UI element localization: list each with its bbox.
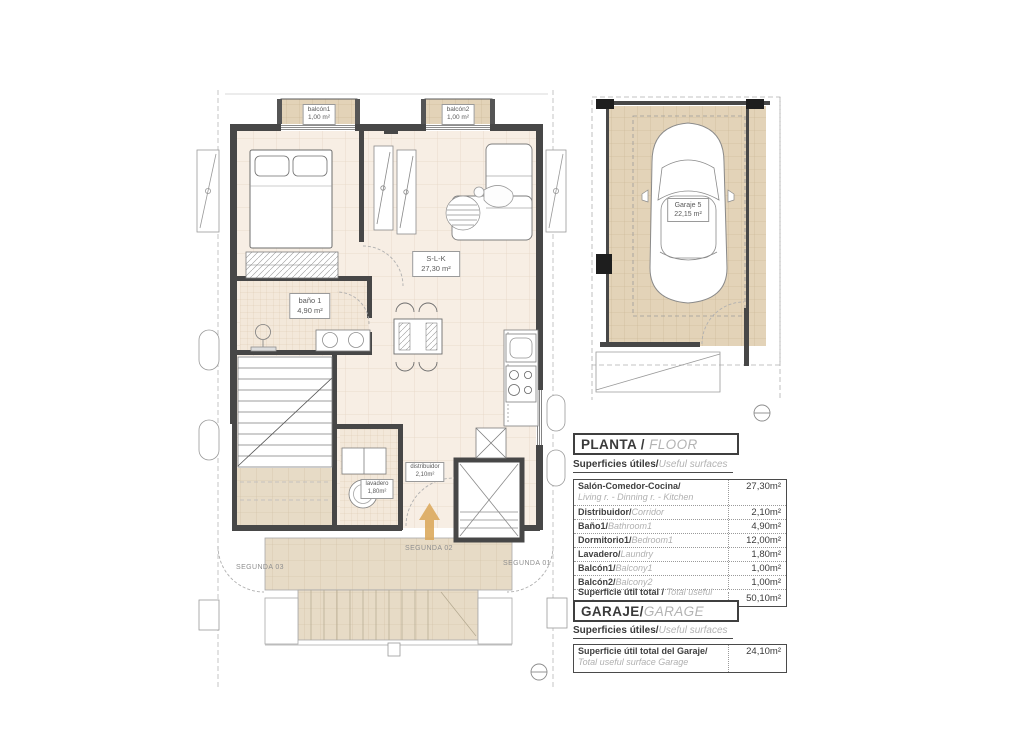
room-label-hall: distribuidor 2,10m² <box>405 462 444 482</box>
floorplan-page: balcón1 1,00 m² balcón2 1,00 m² S-L-K 27… <box>0 0 1020 745</box>
terrace <box>265 538 512 656</box>
room-label-balcony2: balcón2 1,00 m² <box>442 104 475 125</box>
annotation-segunda03: SEGUNDA 03 <box>236 564 284 571</box>
table-row: Salón-Comedor-Cocina/ Living r. - Dinnin… <box>574 480 786 505</box>
table-row: Balcón1/Balcony1 1,00m² <box>574 561 786 575</box>
annotation-segunda02: SEGUNDA 02 <box>405 545 453 552</box>
floor-section-subtitle: Superficies útiles/Useful surfaces <box>573 459 733 473</box>
garage-ramp <box>596 352 720 392</box>
wardrobe <box>246 252 338 278</box>
room-label-balcony1: balcón1 1,00 m² <box>303 104 336 125</box>
room-label-living: S-L-K 27,30 m² <box>412 251 460 277</box>
table-row: Distribuidor/Corridor 2,10m² <box>574 505 786 519</box>
room-label-garage: Garaje 5 22,15 m² <box>667 198 709 222</box>
table-row: Lavadero/Laundry 1,80m² <box>574 547 786 561</box>
room-label-laundry: lavadero 1,80m² <box>360 479 393 499</box>
garage-surface-table: Superficie útil total del Garaje/ Total … <box>573 644 787 673</box>
table-row: Baño1/Bathroom1 4,90m² <box>574 519 786 533</box>
table-row: Dormitorio1/Bedroom1 12,00m² <box>574 533 786 547</box>
table-row-total: Superficie útil total del Garaje/ Total … <box>574 645 786 672</box>
floor-surface-table: Salón-Comedor-Cocina/ Living r. - Dinnin… <box>573 479 787 607</box>
bed <box>250 150 332 248</box>
round-rug <box>446 196 480 230</box>
room-label-bath: baño 1 4,90 m² <box>289 293 330 319</box>
floor-section-title: PLANTA / FLOOR <box>573 433 739 455</box>
garage-section-title: GARAJE/GARAGE <box>573 600 739 622</box>
plan-drawing <box>0 0 1020 745</box>
elevator-shaft <box>456 460 522 540</box>
annotation-segunda01: SEGUNDA 01 <box>503 560 551 567</box>
garage-section-subtitle: Superficies útiles/Useful surfaces <box>573 625 733 639</box>
